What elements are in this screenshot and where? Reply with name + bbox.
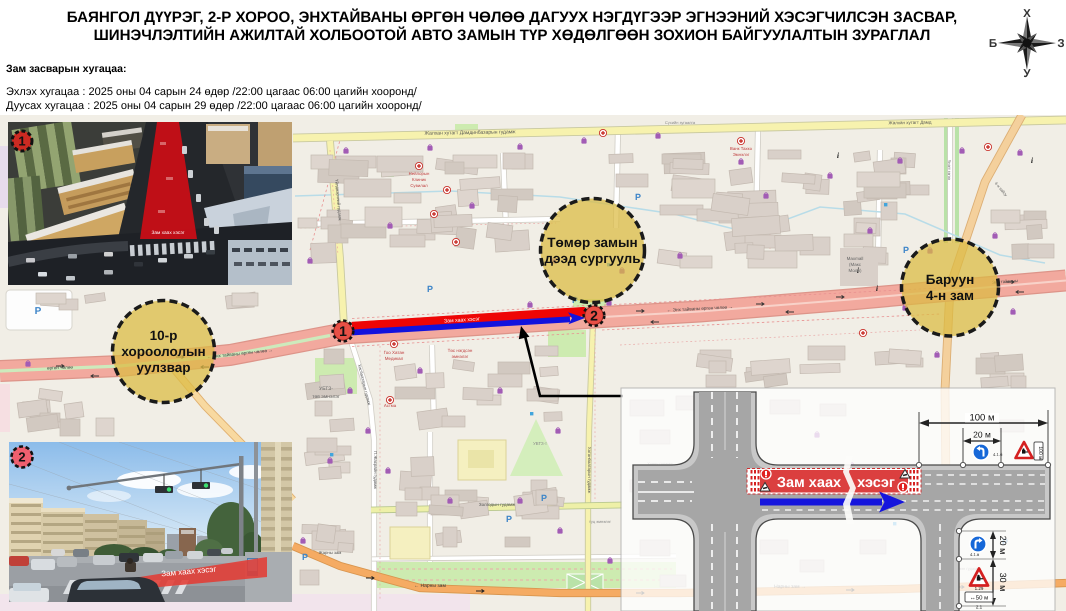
svg-text:20 м: 20 м [998,536,1008,555]
svg-text:У: У [1023,68,1031,80]
svg-text:4.1.б: 4.1.б [993,452,1003,457]
svg-text:← Нарны зам: ← Нарны зам [414,583,446,589]
svg-text:эмнэлэг: эмнэлэг [452,354,469,359]
svg-text:P: P [903,245,909,255]
svg-text:Ванк Тахко: Ванк Тахко [730,146,753,151]
svg-text:20 м: 20 м [973,430,991,440]
svg-text:Сувилал: Сувилал [410,183,428,188]
svg-text:Хатанбаатарын гудамж: Хатанбаатарын гудамж [587,447,592,494]
svg-text:P: P [427,284,433,294]
svg-text:төв эмнэлэг: төв эмнэлэг [312,394,340,400]
svg-text:хэсэг: хэсэг [857,475,895,491]
svg-text:4-н зам: 4-н зам [926,288,974,303]
svg-text:2: 2 [590,308,598,324]
svg-text:Клиник: Клиник [412,177,426,182]
svg-text:1.29: 1.29 [975,586,984,591]
svg-text:10-р: 10-р [150,328,178,343]
svg-text:З: З [1057,38,1064,50]
svg-text:түц эмнэлэг: түц эмнэлэг [589,519,612,524]
svg-text:Зам хаах хэсэг: Зам хаах хэсэг [151,230,184,236]
svg-text:Молл): Молл) [849,268,862,273]
svg-text:Золгодын гудамж: Золгодын гудамж [479,502,515,507]
svg-text:30 м: 30 м [998,573,1008,592]
svg-text:100 м: 100 м [969,413,994,424]
svg-text:P: P [635,192,641,202]
svg-text:Х: Х [1023,8,1031,20]
svg-text:Сүхийн зугаалга: Сүхийн зугаалга [665,120,696,125]
svg-text:Жарны зам: Жарны зам [319,550,342,555]
svg-text:↔50 м: ↔50 м [970,595,988,602]
svg-text:Maxmall: Maxmall [847,256,864,261]
svg-text:P: P [506,514,512,524]
svg-text:Төс нэгдсэн: Төс нэгдсэн [448,348,473,353]
svg-text:Б: Б [989,38,997,50]
svg-text:дээд сургууль: дээд сургууль [544,251,640,266]
svg-text:Гоо Хатан: Гоо Хатан [384,350,405,355]
svg-text:P: P [302,552,308,562]
svg-text:өргөн чөлөө: өргөн чөлөө [47,365,73,371]
svg-text:УБТЗ-: УБТЗ- [319,386,333,392]
svg-text:Зам хаах: Зам хаах [777,475,841,491]
svg-text:Астма: Астма [384,403,397,408]
svg-text:Төмөр замын: Төмөр замын [547,235,637,250]
svg-text:Эмнэлэг: Эмнэлэг [733,152,750,157]
svg-text:P: P [35,306,42,317]
svg-text:Нейлорын: Нейлорын [409,171,430,176]
svg-text:Медикал: Медикал [385,356,404,361]
svg-text:1: 1 [339,323,347,339]
svg-text:уулзвар: уулзвар [137,360,191,375]
svg-text:2.1: 2.1 [976,605,983,610]
svg-text:1: 1 [18,134,25,149]
svg-text:2: 2 [18,450,25,465]
svg-text:P: P [541,493,547,503]
svg-text:4.1.в: 4.1.в [970,552,980,557]
svg-text:Баруун: Баруун [926,272,974,287]
svg-text:100 м: 100 м [1037,446,1043,460]
svg-text:хороололын: хороололын [121,344,205,359]
svg-text:Жалхан хутагт Дамд: Жалхан хутагт Дамд [888,120,931,126]
svg-text:П.Жасрайн гудамж: П.Жасрайн гудамж [373,451,378,489]
svg-text:УБТЗ-т: УБТЗ-т [533,441,547,446]
svg-text:Үнэгт гэгээ: Үнэгт гэгээ [947,160,952,180]
svg-text:(Макс: (Макс [849,262,862,267]
